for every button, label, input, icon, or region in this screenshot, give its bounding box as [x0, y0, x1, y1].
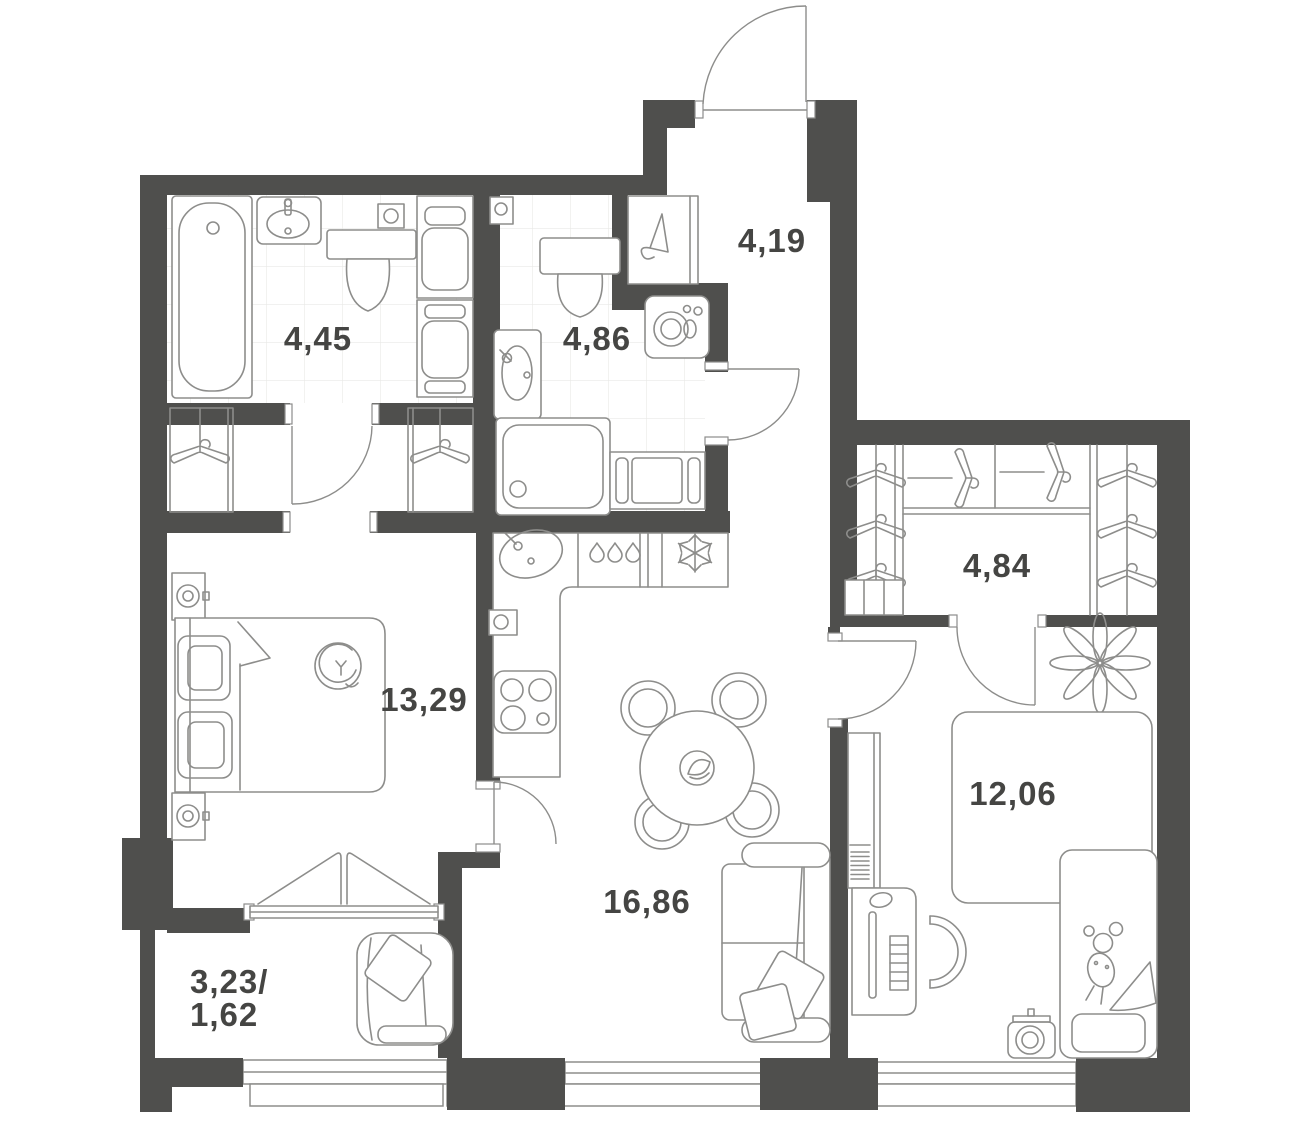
label-wardrobe: 4,84 — [963, 547, 1031, 584]
wardrobe-interior — [845, 443, 1156, 615]
boiler-box-icon — [489, 610, 517, 635]
french-door — [250, 853, 438, 918]
pillow — [739, 983, 797, 1041]
balcony-sill — [250, 1084, 443, 1106]
balcony-furniture — [357, 933, 453, 1045]
nightstand-icon — [172, 793, 209, 840]
bedroom-furniture — [172, 573, 438, 918]
washing-machine-icon — [645, 296, 709, 358]
radiator-icon — [851, 852, 869, 879]
kids-room-furniture — [848, 613, 1157, 1058]
wardrobe-drawer-unit — [845, 580, 903, 615]
bathroom-1-door — [292, 426, 372, 504]
desk-chair-icon — [930, 916, 966, 988]
desk-icon — [852, 888, 916, 1015]
coat-rack — [628, 196, 698, 284]
swing-hanger-icon — [955, 449, 978, 507]
bath-cabinet-icon — [610, 452, 705, 509]
shelf-box-icon — [490, 197, 513, 224]
tv-unit-icon — [848, 733, 880, 888]
double-bed-icon — [175, 618, 385, 792]
nightstand-icon — [172, 573, 209, 620]
sink-icon — [257, 197, 321, 244]
bathroom-2-door — [728, 369, 799, 440]
dining-table-icon — [640, 711, 754, 825]
sofa-icon — [722, 843, 830, 1042]
floor-plan: 4,45 4,86 4,19 4,84 13,29 16,86 12,06 3,… — [0, 0, 1301, 1121]
wardrobe-door — [957, 627, 1035, 705]
label-living-kitchen: 16,86 — [603, 883, 691, 920]
label-balcony-reduced: 1,62 — [190, 996, 258, 1033]
bedroom-door — [494, 782, 556, 844]
label-bathroom-2: 4,86 — [563, 320, 631, 357]
sink-icon — [494, 330, 541, 419]
label-bathroom-1: 4,45 — [284, 320, 352, 357]
label-balcony-total: 3,23/ — [190, 963, 268, 1000]
dining-set — [621, 673, 779, 849]
kids-bed-icon — [1060, 850, 1157, 1058]
windows — [243, 1060, 1076, 1106]
hanger-icon — [171, 440, 229, 463]
label-bedroom: 13,29 — [380, 681, 468, 718]
armchair-icon — [357, 933, 453, 1045]
swing-hanger-icon — [1047, 443, 1070, 501]
plant-icon — [1050, 613, 1150, 713]
washer-column-icon — [417, 196, 473, 397]
label-hallway: 4,19 — [738, 222, 806, 259]
kids-room-door — [838, 641, 916, 719]
stove-icon — [494, 671, 556, 733]
bathtub-icon — [172, 196, 252, 398]
toy-camera-icon — [1008, 1009, 1055, 1058]
hanger-icon — [411, 440, 469, 463]
shower-icon — [496, 418, 610, 515]
mirror-box-icon — [378, 204, 404, 228]
label-kids-room: 12,06 — [969, 775, 1057, 812]
floor-plan-svg: 4,45 4,86 4,19 4,84 13,29 16,86 12,06 3,… — [0, 0, 1301, 1121]
entrance-door — [703, 6, 807, 110]
